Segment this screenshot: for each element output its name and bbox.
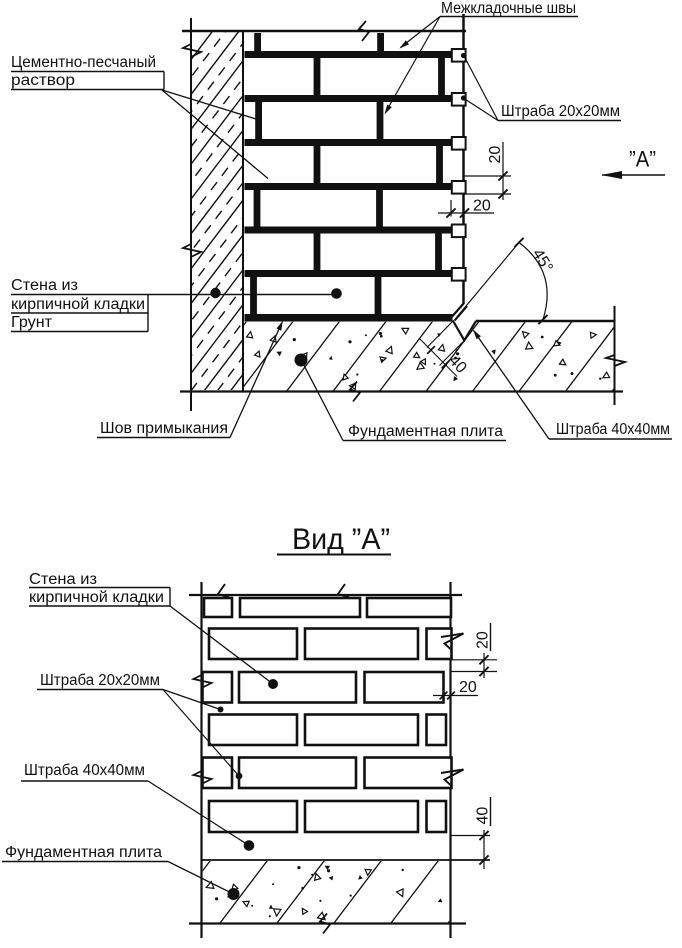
svg-text:20: 20 — [473, 198, 491, 215]
svg-text:Вид ”А”: Вид ”А” — [292, 523, 390, 556]
svg-text:кирпичной кладки: кирпичной кладки — [29, 589, 164, 606]
svg-text:Штраба 40x40мм: Штраба 40x40мм — [24, 762, 145, 779]
svg-text:Фундаментная плита: Фундаментная плита — [348, 423, 503, 440]
svg-text:Межкладочные швы: Межкладочные швы — [441, 0, 576, 17]
svg-text:Фундаментная плита: Фундаментная плита — [5, 844, 162, 861]
svg-text:20: 20 — [487, 146, 504, 164]
svg-text:Грунт: Грунт — [11, 314, 52, 331]
svg-text:Штраба 20x20мм: Штраба 20x20мм — [40, 672, 160, 689]
svg-text:Шов примыкания: Шов примыкания — [100, 420, 228, 437]
svg-text:”А”: ”А” — [629, 147, 656, 172]
svg-text:Стена из: Стена из — [29, 571, 97, 588]
svg-text:раствор: раствор — [11, 72, 75, 89]
svg-text:20: 20 — [475, 631, 492, 649]
svg-text:Цементно-песчаный: Цементно-песчаный — [11, 54, 156, 71]
svg-text:Стена из: Стена из — [11, 277, 78, 294]
svg-text:кирпичной кладки: кирпичной кладки — [11, 296, 145, 313]
svg-text:Штраба 40x40мм: Штраба 40x40мм — [556, 421, 670, 438]
svg-text:40: 40 — [475, 807, 492, 825]
svg-text:Штраба 20x20мм: Штраба 20x20мм — [501, 103, 620, 120]
svg-text:20: 20 — [459, 679, 477, 696]
